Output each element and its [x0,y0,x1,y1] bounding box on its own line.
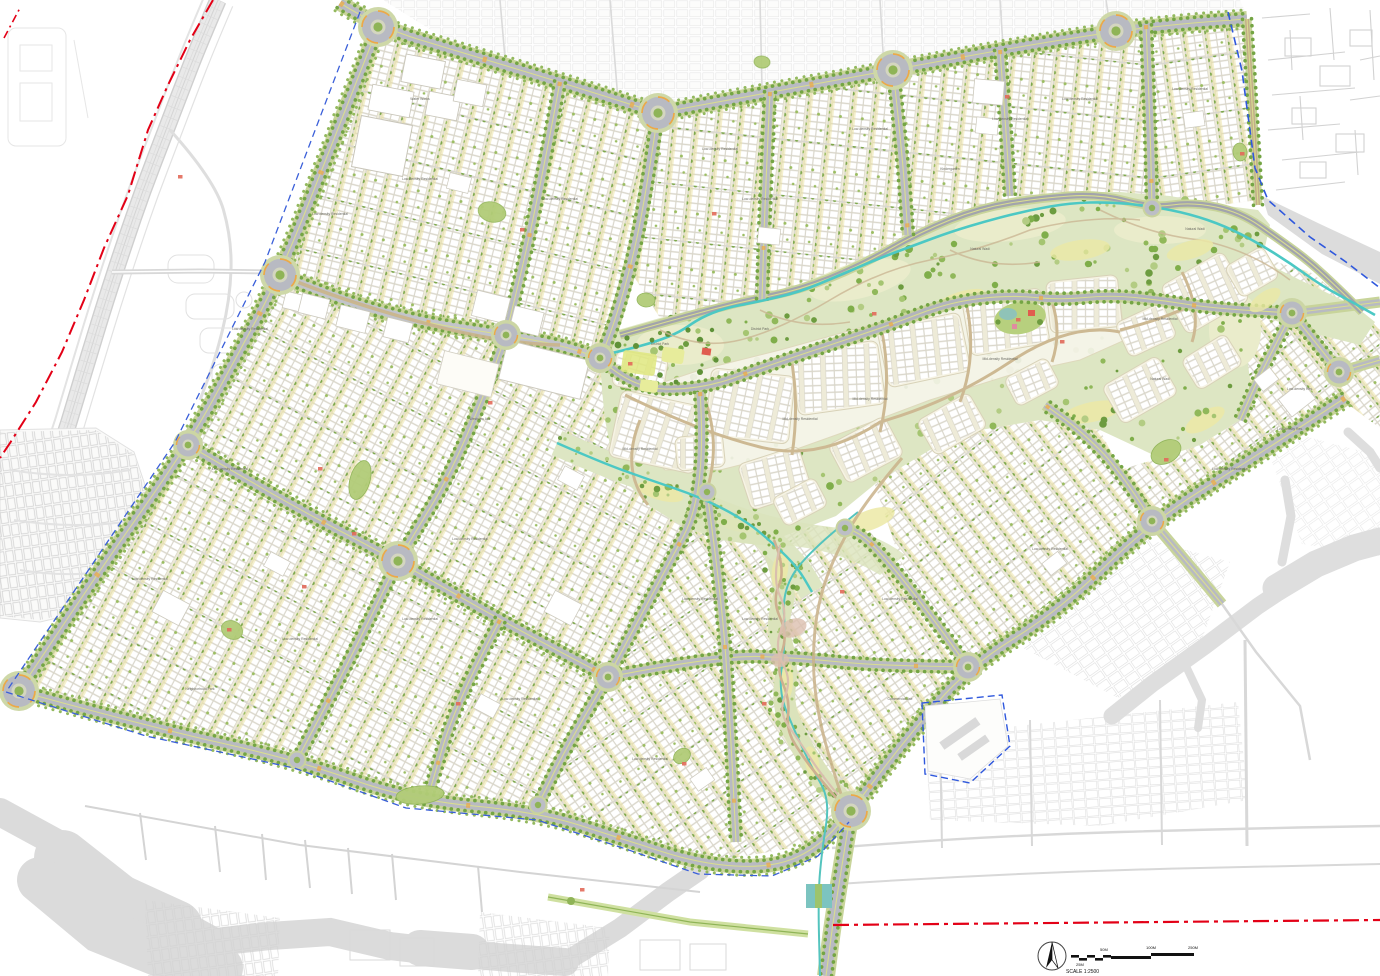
svg-text:Low-density Residential: Low-density Residential [402,177,438,181]
svg-text:District Park: District Park [651,342,670,346]
svg-text:Low-density Residential: Low-density Residential [402,617,438,621]
svg-text:Low-density Residential: Low-density Residential [502,697,538,701]
svg-text:Commercial Use: Commercial Use [887,697,912,701]
svg-text:Low-density Res.: Low-density Res. [1287,387,1313,391]
svg-text:Low-density Residential: Low-density Residential [452,537,488,541]
svg-text:Low-density Residential: Low-density Residential [742,617,778,621]
svg-text:Natural Wadi: Natural Wadi [1185,227,1205,231]
svg-text:Low-density Residential: Low-density Residential [882,597,918,601]
svg-text:Kindergarten: Kindergarten [940,167,960,171]
svg-text:Low-density Residential: Low-density Residential [992,117,1028,121]
svg-text:Low-density Residential: Low-density Residential [632,757,668,761]
svg-text:Mid-density Residential: Mid-density Residential [1142,317,1177,321]
svg-text:100M: 100M [1146,945,1156,950]
svg-text:Low-density Residential: Low-density Residential [232,327,268,331]
svg-text:Natural Wadi: Natural Wadi [970,247,990,251]
svg-text:Low-density Residential: Low-density Residential [312,212,348,216]
svg-text:District Park: District Park [751,327,770,331]
svg-text:Water Works: Water Works [410,97,430,101]
svg-text:25M: 25M [1076,962,1084,967]
svg-text:Low-density Residential: Low-density Residential [682,597,718,601]
svg-text:Mid-density Residential: Mid-density Residential [852,397,887,401]
svg-text:Neighborhood Park: Neighborhood Park [185,687,215,691]
svg-text:Natural Wadi: Natural Wadi [1150,377,1170,381]
svg-text:Low-density Residential: Low-density Residential [542,197,578,201]
svg-text:Mid-density Residential: Mid-density Residential [622,447,657,451]
svg-text:Low-density Res.: Low-density Res. [1277,427,1303,431]
svg-text:50M: 50M [1100,947,1108,952]
svg-text:Low-density Residential: Low-density Residential [1212,467,1248,471]
svg-text:Low-density Residential: Low-density Residential [742,197,778,201]
svg-text:SCALE 1:2500: SCALE 1:2500 [1066,969,1099,975]
svg-text:250M: 250M [1188,945,1198,950]
svg-text:Low-density Residential: Low-density Residential [132,577,168,581]
svg-text:Mid-density Residential: Mid-density Residential [982,357,1017,361]
svg-text:Low-density Residential: Low-density Residential [1062,97,1098,101]
svg-text:Mid-density Residential: Mid-density Residential [782,417,817,421]
svg-text:Low-density Residential: Low-density Residential [852,127,888,131]
svg-text:Low-density Residential: Low-density Residential [282,637,318,641]
svg-text:Low-density Residential: Low-density Residential [1032,547,1068,551]
svg-text:Westview Ave: Westview Ave [470,417,491,421]
svg-text:Low-density Residential: Low-density Residential [702,147,738,151]
svg-text:Low-density Residential: Low-density Residential [212,467,248,471]
svg-text:Low-density Residential: Low-density Residential [1172,87,1208,91]
